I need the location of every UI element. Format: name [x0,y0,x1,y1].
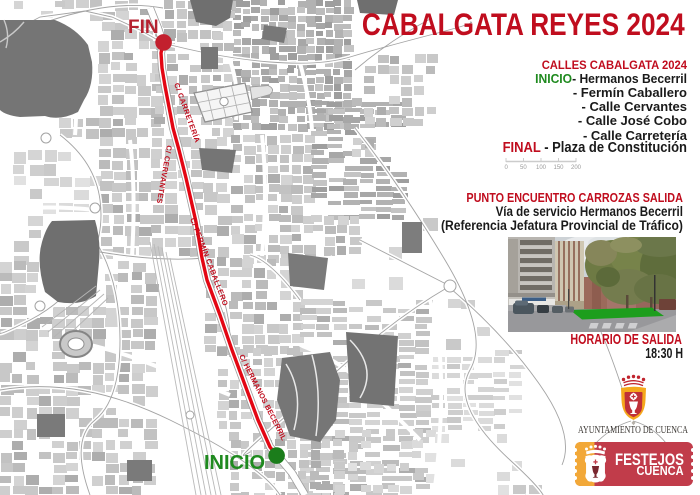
svg-text:50: 50 [520,165,527,171]
svg-text:CUENCA: CUENCA [637,464,684,478]
svg-text:AYUNTAMIENTO DE CUENCA: AYUNTAMIENTO DE CUENCA [578,425,689,436]
svg-text:0: 0 [505,165,509,171]
svg-text:150: 150 [554,165,565,171]
svg-text:INICIO: INICIO [204,452,265,474]
svg-text:100: 100 [536,165,547,171]
svg-text:200: 200 [571,165,582,171]
svg-text:FIN: FIN [128,17,159,38]
